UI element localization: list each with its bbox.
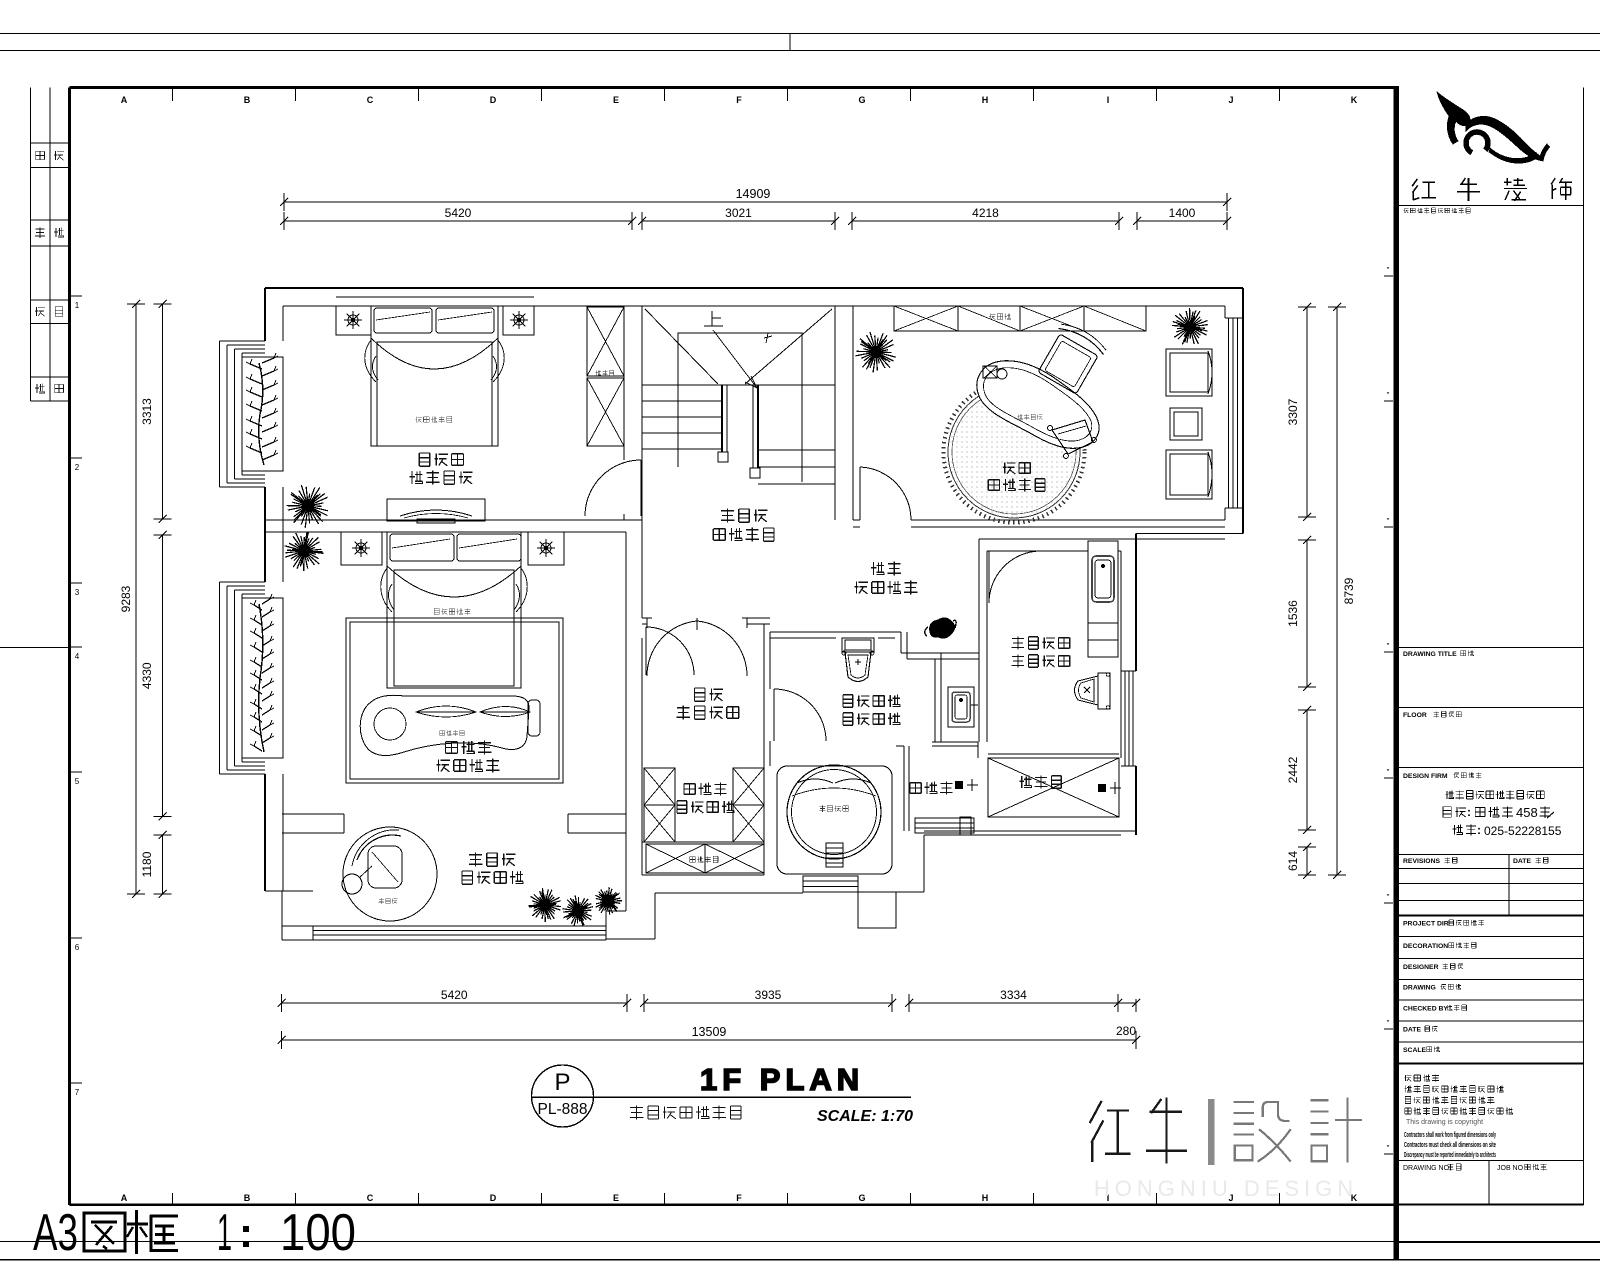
svg-text:1: 1 [75,301,80,310]
svg-text:13509: 13509 [692,1025,727,1039]
svg-text:Discrepancy must be reported i: Discrepancy must be reported immediately… [1404,1152,1496,1159]
svg-text:3935: 3935 [755,988,782,1002]
svg-text:3334: 3334 [1000,988,1027,1002]
svg-text:5420: 5420 [445,206,472,220]
svg-text:": " [1387,768,1390,777]
svg-text::: : [1477,823,1481,837]
svg-text:B: B [244,95,251,105]
svg-text:CHECKED BY: CHECKED BY [1403,1006,1448,1013]
svg-text:6: 6 [75,943,80,952]
svg-text:14909: 14909 [736,187,771,201]
svg-text:": " [1387,1144,1390,1153]
svg-text:SCALE: 1:70: SCALE: 1:70 [817,1108,913,1125]
svg-text:D: D [490,1193,497,1203]
svg-text:4218: 4218 [972,206,999,220]
svg-text:": " [1387,391,1390,400]
svg-text:": " [1387,517,1390,526]
svg-text:": " [1387,1019,1390,1028]
svg-text:Contractors shall work from fi: Contractors shall work from figured dime… [1404,1132,1496,1139]
svg-text:3: 3 [75,588,80,597]
svg-text:614: 614 [1286,851,1300,871]
svg-text:1400: 1400 [1169,206,1196,220]
svg-text:REVISIONS: REVISIONS [1403,858,1440,865]
svg-text:9283: 9283 [119,585,133,612]
svg-text:1: 1 [217,1204,232,1262]
svg-text:Contractors must check all dim: Contractors must check all dimensions on… [1404,1142,1496,1149]
svg-text:DESIGNER: DESIGNER [1403,964,1439,971]
svg-text:JOB NO: JOB NO [1497,1165,1524,1172]
svg-text:4: 4 [75,652,80,661]
svg-text:C: C [367,1193,374,1203]
svg-text:458: 458 [1516,805,1538,820]
svg-text:025-52228155: 025-52228155 [1484,824,1562,838]
svg-text:SCALE: SCALE [1403,1047,1427,1054]
svg-text:280: 280 [1116,1024,1136,1038]
svg-text:100: 100 [280,1204,356,1262]
svg-text:B: B [244,1193,251,1203]
svg-text:7: 7 [75,1088,80,1097]
svg-text:A3: A3 [33,1204,78,1262]
svg-text:": " [1387,266,1390,275]
svg-text:C: C [367,95,374,105]
svg-text:K: K [1351,95,1358,105]
svg-text:G: G [858,1193,865,1203]
svg-text:5: 5 [75,777,80,786]
svg-text:4330: 4330 [140,662,154,689]
svg-text:1F PLAN: 1F PLAN [700,1062,864,1097]
svg-text:": " [1387,893,1390,902]
svg-text:3021: 3021 [725,206,752,220]
svg-text:A: A [121,95,128,105]
svg-text:E: E [613,95,619,105]
svg-text:PROJECT DIR: PROJECT DIR [1403,921,1449,928]
svg-text:H: H [982,95,989,105]
svg-text:HONGNIU DESIGN: HONGNIU DESIGN [1094,1176,1358,1201]
svg-text:F: F [736,95,742,105]
svg-text:8739: 8739 [1342,577,1356,604]
svg-text:DRAWING TITLE: DRAWING TITLE [1403,651,1457,658]
svg-text:": " [1387,642,1390,651]
svg-text:3313: 3313 [140,398,154,425]
svg-text:DRAWING NO: DRAWING NO [1403,1165,1450,1172]
svg-text:DECORATION: DECORATION [1403,943,1448,950]
svg-text:D: D [490,95,497,105]
svg-text:DRAWING: DRAWING [1403,985,1436,992]
svg-text:P: P [554,1069,570,1096]
svg-text:H: H [982,1193,989,1203]
svg-text:F: F [736,1193,742,1203]
svg-text:DATE: DATE [1513,858,1531,865]
svg-text:5420: 5420 [441,988,468,1002]
svg-text:DESIGN FIRM: DESIGN FIRM [1403,773,1448,780]
svg-text:1536: 1536 [1286,600,1300,627]
svg-text::: : [1467,805,1471,819]
svg-text:PL-888: PL-888 [538,1101,588,1118]
svg-text:G: G [858,95,865,105]
svg-text:E: E [613,1193,619,1203]
svg-text:DATE: DATE [1403,1027,1421,1034]
svg-text:2442: 2442 [1286,756,1300,783]
svg-text:A: A [121,1193,128,1203]
svg-text:J: J [1228,95,1233,105]
svg-text:I: I [1107,95,1110,105]
svg-text:FLOOR: FLOOR [1403,712,1427,719]
svg-text:2: 2 [75,463,80,472]
svg-text:1180: 1180 [140,851,154,877]
svg-text:3307: 3307 [1286,398,1300,425]
svg-text:This drawing is copyright: This drawing is copyright [1406,1119,1483,1126]
